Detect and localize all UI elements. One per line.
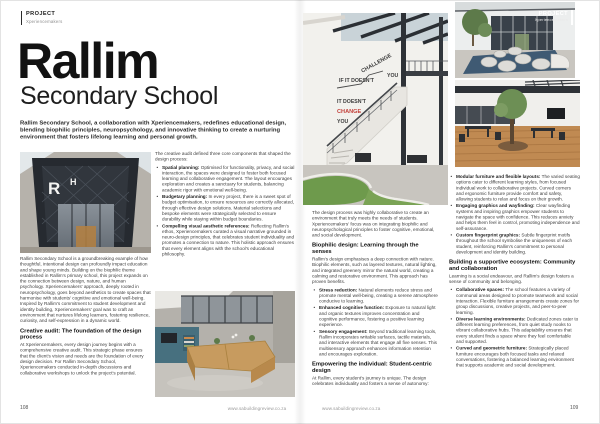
section-kicker: PROJECT <box>26 11 55 17</box>
paragraph: At Xperiencemakers, every design journey… <box>20 342 151 376</box>
section-kicker-right: PROJECT Xperiencemakers <box>500 11 568 22</box>
paragraph: At Rallim, every student's journey is un… <box>312 375 439 386</box>
wall-quote-change: CHANGE <box>337 109 362 115</box>
wall-quote-line1: IF IT DOESN'T <box>339 78 375 84</box>
list-item: Diverse learning environments: Dedicated… <box>449 316 580 344</box>
page-number-left: 108 <box>20 405 28 411</box>
photo-reception-interior <box>155 291 295 397</box>
heading-creative-audit: Creative audit: The foundation of the de… <box>20 328 151 341</box>
website-link[interactable]: www.sabuildingreview.co.za <box>214 406 300 411</box>
wall-quote-you2: YOU <box>337 119 348 125</box>
list-item: Engaging graphics and wayfinding: Clear … <box>449 203 580 231</box>
intro-paragraph: Rallim Secondary School, a collaboration… <box>20 119 292 151</box>
list-item: Enhanced cognitive function: Exposure to… <box>312 305 439 328</box>
list-item: Curved and geometric furniture: Strategi… <box>449 346 580 369</box>
list-item: Sensory engagement: Beyond traditional l… <box>312 329 439 357</box>
paragraph: Rallim Secondary School is a groundbreak… <box>20 256 151 324</box>
list-item: Modular furniture and flexible layouts: … <box>449 174 580 202</box>
article-title: Rallim <box>17 36 158 86</box>
article-subtitle: Secondary School <box>20 84 218 109</box>
heading-biophilic-design: Biophilic design: Learning through the s… <box>312 242 439 255</box>
list-item: Custom fingerprint graphics: Subtle fing… <box>449 232 580 255</box>
paragraph: Rallim's design emphasises a deep connec… <box>312 257 439 285</box>
body-column-1: Rallim Secondary School is a groundbreak… <box>20 256 151 406</box>
list-item: Budgetary planning: In every project, th… <box>155 194 295 222</box>
footer-left: www.sabuildingreview.co.za <box>214 406 300 414</box>
list-item: Spatial planning: Optimised for function… <box>155 165 295 193</box>
paragraph: The creative audit defined three core co… <box>155 151 295 162</box>
photo-timber-deck <box>455 80 580 167</box>
kicker-rule-right <box>571 10 573 25</box>
logo-letter-r: R <box>48 179 60 198</box>
list-item: Compelling visual aesthetic references: … <box>155 223 295 257</box>
kicker-rule <box>21 11 22 25</box>
body-column-2: The creative audit defined three core co… <box>155 151 295 289</box>
paragraph: Learning is a social endeavour, and Rall… <box>449 273 580 284</box>
paragraph: The design process was highly collaborat… <box>312 210 439 238</box>
page-number-right: 109 <box>570 405 578 411</box>
heading-empowering-individual: Empowering the individual: Student-centr… <box>312 361 439 374</box>
footer-right: www.sabuildingreview.co.za <box>322 406 388 414</box>
magazine-spread: PROJECT Xperiencemakers Rallim Secondary… <box>0 0 600 424</box>
list-item: Stress reduction: Natural elements reduc… <box>312 287 439 304</box>
photo-building-entrance: R H <box>20 152 151 253</box>
website-link[interactable]: www.sabuildingreview.co.za <box>322 406 388 411</box>
body-column-4: Modular furniture and flexible layouts: … <box>449 174 580 406</box>
wall-quote-line2: IT DOESN'T <box>337 99 367 105</box>
photo-courtyard-staircase: IF IT DOESN'T CHALLENGE YOU IT DOESN'T C… <box>303 13 448 205</box>
heading-supportive-ecosystem: Building a supportive ecosystem: Communi… <box>449 259 580 272</box>
logo-letter-h: H <box>70 177 77 187</box>
section-kicker-sub: Xperiencemakers <box>26 19 62 24</box>
body-column-3: The design process was highly collaborat… <box>312 210 439 406</box>
list-item: Collaborative spaces: The school feature… <box>449 287 580 315</box>
wall-quote-you1: YOU <box>387 73 398 79</box>
